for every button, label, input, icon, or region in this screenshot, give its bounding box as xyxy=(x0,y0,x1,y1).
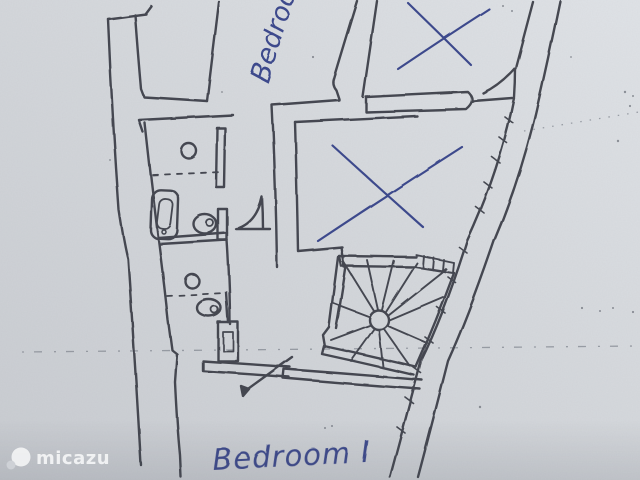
floorplan-photo: Bedroom Bedroom I micazu xyxy=(0,0,640,480)
watermark: micazu xyxy=(7,448,111,470)
floorplan-drawing: Bedroom Bedroom I micazu xyxy=(0,0,640,480)
watermark-text: micazu xyxy=(36,448,110,469)
